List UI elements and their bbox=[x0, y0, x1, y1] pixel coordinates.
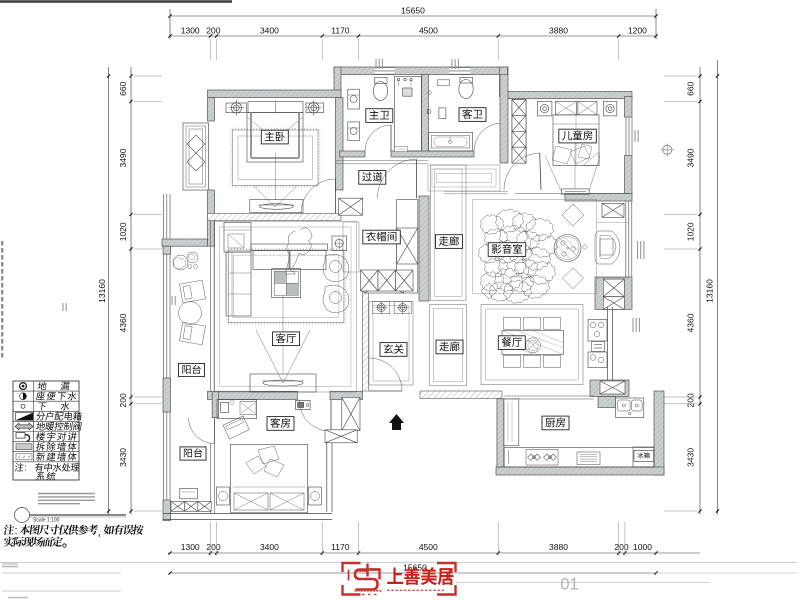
svg-text:4500: 4500 bbox=[419, 542, 438, 552]
svg-text:3880: 3880 bbox=[549, 26, 568, 36]
svg-text:1300: 1300 bbox=[181, 26, 200, 36]
svg-text:660: 660 bbox=[686, 81, 696, 95]
svg-text:4360: 4360 bbox=[686, 313, 696, 332]
svg-text:200: 200 bbox=[686, 393, 696, 407]
svg-text:13160: 13160 bbox=[705, 279, 715, 303]
svg-text:3400: 3400 bbox=[260, 26, 279, 36]
svg-text:200: 200 bbox=[614, 542, 628, 552]
svg-text:4500: 4500 bbox=[419, 26, 438, 36]
svg-text:01: 01 bbox=[560, 576, 578, 594]
svg-text:1020: 1020 bbox=[686, 222, 696, 241]
svg-text:Scale 1:100: Scale 1:100 bbox=[33, 518, 60, 524]
svg-text::: : bbox=[24, 463, 27, 473]
svg-text:1300: 1300 bbox=[181, 542, 200, 552]
svg-text:4360: 4360 bbox=[118, 313, 128, 332]
svg-text:1200: 1200 bbox=[628, 26, 647, 36]
svg-text:3400: 3400 bbox=[260, 542, 279, 552]
svg-text::: : bbox=[15, 525, 18, 537]
svg-text:3430: 3430 bbox=[686, 448, 696, 467]
svg-text:200: 200 bbox=[118, 393, 128, 407]
svg-text:,: , bbox=[98, 525, 101, 539]
svg-text:3880: 3880 bbox=[549, 542, 568, 552]
svg-text:3430: 3430 bbox=[118, 448, 128, 467]
svg-text:200: 200 bbox=[206, 542, 220, 552]
svg-text:1000: 1000 bbox=[633, 542, 652, 552]
svg-text:3490: 3490 bbox=[686, 148, 696, 167]
svg-text:200: 200 bbox=[206, 26, 220, 36]
svg-text:15650: 15650 bbox=[401, 5, 425, 15]
svg-text:1170: 1170 bbox=[331, 542, 350, 552]
svg-text:660: 660 bbox=[118, 81, 128, 95]
svg-text:3490: 3490 bbox=[118, 148, 128, 167]
svg-text:13160: 13160 bbox=[97, 279, 107, 303]
svg-text:1020: 1020 bbox=[118, 222, 128, 241]
svg-text:1170: 1170 bbox=[331, 26, 350, 36]
